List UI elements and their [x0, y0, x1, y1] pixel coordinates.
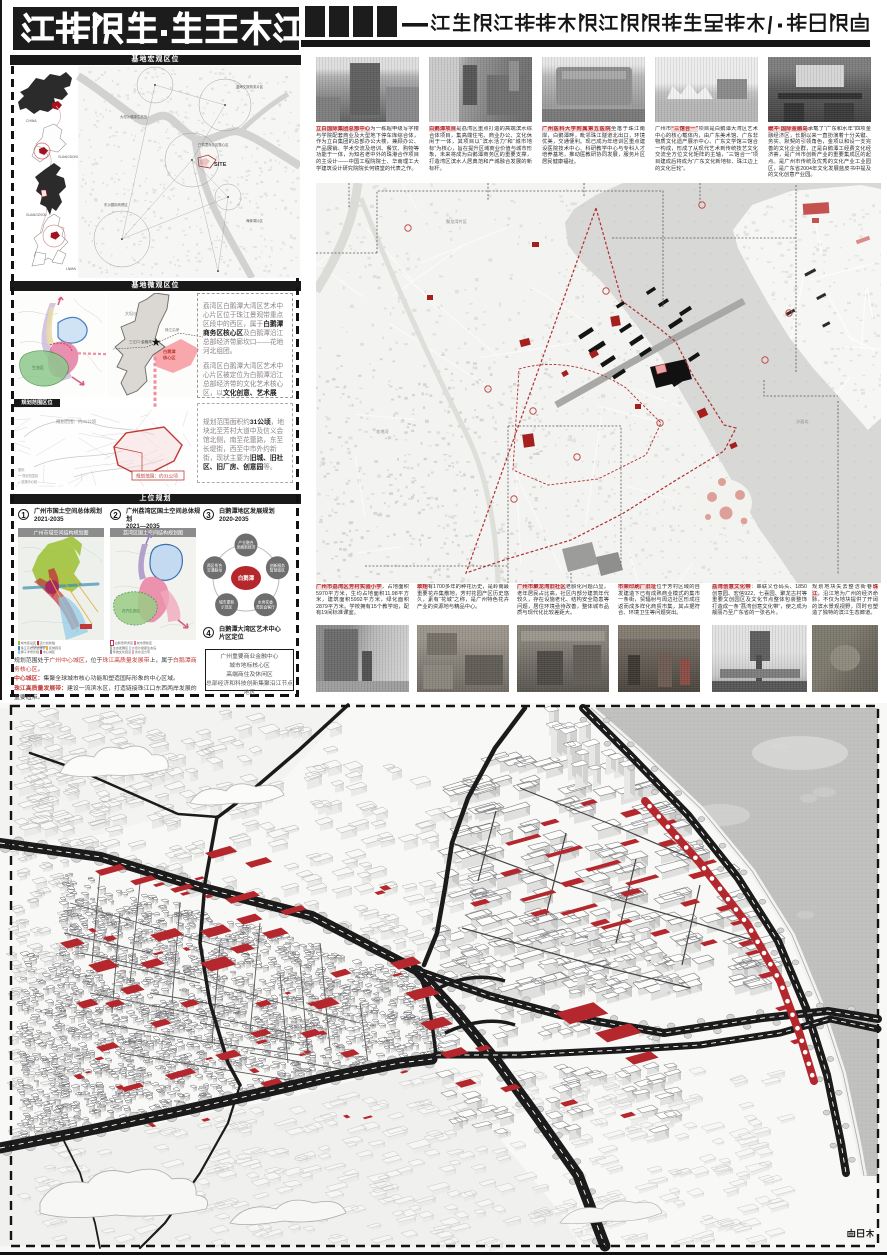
svg-text:珠江沿岸: 珠江沿岸 [165, 327, 180, 332]
svg-text:三江口·金融湾: 三江口·金融湾 [129, 339, 152, 344]
svg-text:湾区会客厅: 湾区会客厅 [256, 604, 275, 609]
svg-text:规划范围：约31公顷: 规划范围：约31公顷 [136, 473, 178, 480]
svg-text:创新服务: 创新服务 [270, 563, 285, 568]
svg-text:聚龙湾片区: 聚龙湾片区 [446, 218, 467, 225]
svg-text:核心区: 核心区 [163, 354, 176, 361]
svg-text:广州市域空间结构规划图: 广州市域空间结构规划图 [33, 530, 88, 537]
svg-text:大坦沙健康生态岛: 大坦沙健康生态岛 [120, 114, 148, 119]
svg-text:大坦沙: 大坦沙 [125, 310, 137, 316]
svg-text:沙面岛: 沙面岛 [796, 418, 809, 425]
svg-text:两区衔合: 两区衔合 [207, 563, 222, 568]
svg-text:海珠湾片区: 海珠湾片区 [246, 218, 264, 223]
svg-text:白鹅潭商务区核心区: 白鹅潭商务区核心区 [198, 142, 229, 147]
svg-text:SITE: SITE [214, 162, 227, 168]
svg-text:图例: 图例 [18, 467, 24, 472]
svg-text:发展新经济: 发展新经济 [237, 545, 256, 550]
svg-text:━ 规划范围线: ━ 规划范围线 [18, 473, 39, 478]
svg-text:规划范围：约31公顷: 规划范围：约31公顷 [56, 418, 97, 425]
svg-text:荔湾区国土空间结构规划图: 荔湾区国土空间结构规划图 [123, 530, 183, 537]
svg-text:交通联动: 交通联动 [207, 567, 222, 572]
svg-text:─ 道路中心线: ─ 道路中心线 [17, 479, 38, 484]
svg-text:智慧街区: 智慧街区 [270, 567, 285, 572]
svg-text:蓝海文旅商务片区: 蓝海文旅商务片区 [236, 84, 264, 89]
svg-text:水秀花香: 水秀花香 [258, 600, 273, 605]
svg-text:花地河: 花地河 [376, 428, 389, 435]
svg-text:生态区: 生态区 [32, 364, 44, 370]
svg-text:白鹅潭: 白鹅潭 [163, 348, 176, 355]
svg-text:城市更新: 城市更新 [219, 600, 234, 605]
svg-text:LIWAN: LIWAN [66, 267, 77, 271]
svg-text:GUANGDONG: GUANGDONG [58, 155, 80, 159]
svg-text:花卉生态区: 花卉生态区 [122, 608, 140, 613]
svg-text:示范区: 示范区 [221, 604, 233, 609]
svg-text:产业融合: 产业融合 [238, 540, 253, 545]
svg-text:白鹅潭: 白鹅潭 [238, 574, 255, 582]
svg-text:CHINA: CHINA [26, 119, 37, 123]
svg-text:东沙国际商贸区: 东沙国际商贸区 [104, 202, 128, 207]
svg-text:GUANGZHOU: GUANGZHOU [26, 213, 47, 217]
